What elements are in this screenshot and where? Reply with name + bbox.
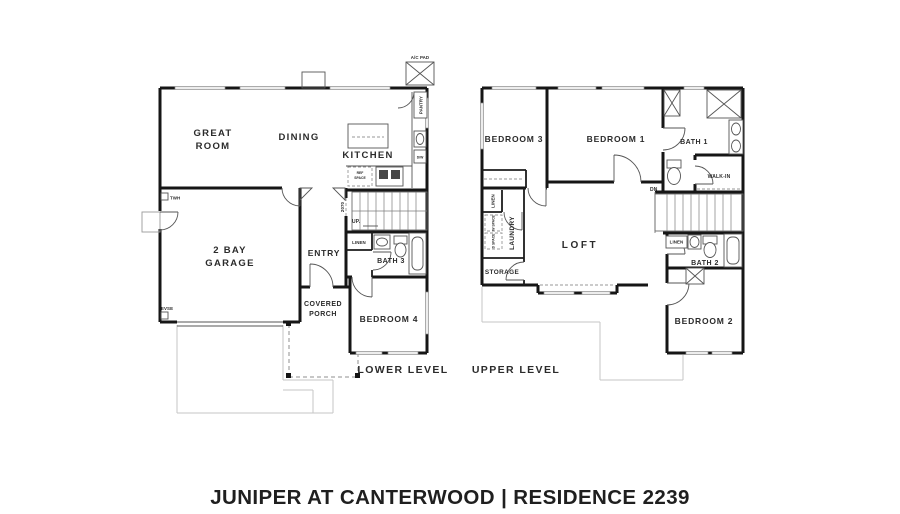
pantry-label: PANTRY — [419, 96, 424, 114]
walk-in-label: WALK-IN — [708, 174, 731, 180]
entry-label: ENTRY — [308, 248, 341, 258]
ref-space-label-line1: REF — [357, 171, 364, 175]
stairs-upper — [655, 194, 743, 231]
upper-level-plan: BEDROOM 3 BEDROOM 1 BATH 1 WALK-IN DN LI… — [472, 87, 743, 381]
covered-porch-label-line2: PORCH — [309, 311, 337, 318]
upper-doors — [504, 128, 713, 305]
bedroom1-label: BEDROOM 1 — [587, 134, 646, 144]
upper-walls — [482, 88, 743, 353]
bedroom4-label: BEDROOM 4 — [360, 314, 419, 324]
door-size-tag: 2070 — [340, 201, 345, 212]
upper-level-caption: UPPER LEVEL — [472, 364, 560, 376]
laundry-label: LAUNDRY — [509, 216, 516, 250]
ref-space-label-line2: SPACE — [354, 176, 366, 180]
bedroom3-label: BEDROOM 3 — [485, 134, 544, 144]
bedroom2-label: BEDROOM 2 — [675, 316, 734, 326]
storage-label: STORAGE — [485, 269, 520, 276]
washer-space-label: W SPACE — [492, 214, 496, 230]
dining-label: DINING — [278, 132, 319, 143]
ac-pad-label: A/C PAD — [411, 55, 429, 60]
bath2-label: BATH 2 — [691, 260, 719, 267]
lower-level-plan: GREAT ROOM DINING KITCHEN 2 BAY GARAGE E… — [142, 55, 449, 413]
site-lines-lower — [177, 325, 333, 413]
twh-label: TWH — [170, 196, 180, 201]
garage-label-line2: GARAGE — [205, 258, 255, 269]
plan-title: JUNIPER AT CANTERWOOD | RESIDENCE 2239 — [0, 486, 900, 510]
linen-hall-label: LINEN — [491, 194, 496, 208]
loft-label: LOFT — [562, 240, 599, 251]
evse-label: EVSE — [161, 306, 173, 311]
upper-windows — [481, 87, 733, 355]
dishwasher-label: D/W — [417, 156, 424, 160]
floor-plan-sheet: GREAT ROOM DINING KITCHEN 2 BAY GARAGE E… — [0, 0, 900, 514]
bath1-label: BATH 1 — [680, 139, 708, 146]
linen-label-lower: LINEN — [352, 240, 366, 245]
bath3-label: BATH 3 — [377, 258, 405, 265]
kitchen-label: KITCHEN — [342, 150, 393, 161]
up-label: UP. — [352, 219, 361, 225]
stairs-lower — [352, 192, 427, 230]
great-room-label-line2: ROOM — [196, 141, 231, 152]
dryer-space-label: D SPACE — [492, 233, 496, 249]
garage-label-line1: 2 BAY — [213, 245, 247, 256]
great-room-label-line1: GREAT — [193, 128, 232, 139]
covered-porch-label-line1: COVERED — [304, 301, 342, 308]
dn-label: DN — [650, 187, 658, 193]
floor-plans: GREAT ROOM DINING KITCHEN 2 BAY GARAGE E… — [0, 0, 900, 478]
linen-bath2-label: LINEN — [670, 240, 684, 245]
lower-level-caption: LOWER LEVEL — [357, 364, 448, 376]
